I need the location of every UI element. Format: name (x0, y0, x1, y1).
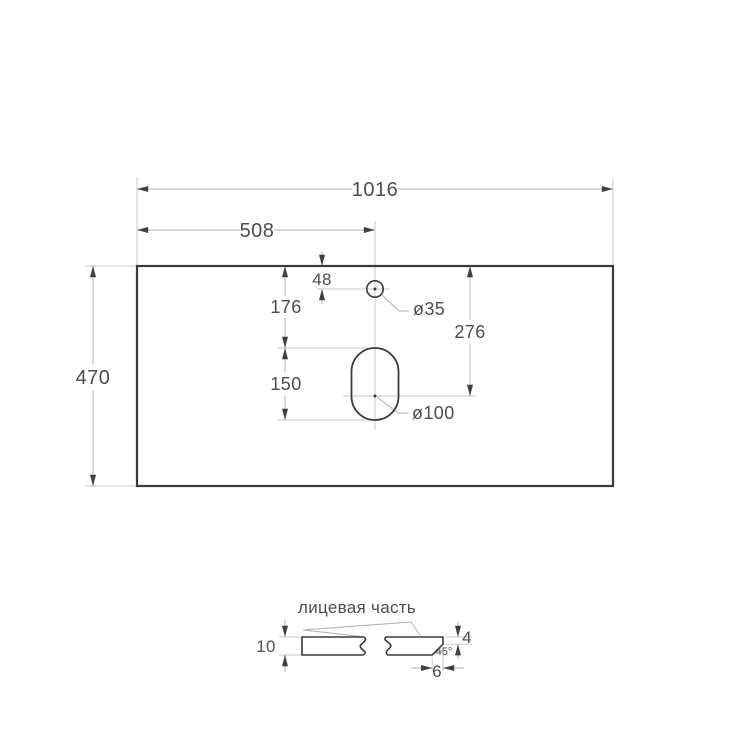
plan-view: 1016 508 470 48 176 150 276 ø35 ø100 (76, 177, 613, 486)
dim-total-width: 1016 (352, 179, 399, 201)
dim-176: 176 (270, 297, 301, 317)
dim-150: 150 (270, 374, 301, 394)
face-leader-left (303, 630, 362, 637)
label-drain-diameter: ø100 (412, 403, 455, 423)
face-label-leaders (303, 622, 420, 637)
extension-lines (86, 177, 613, 486)
section-slab-left-piece (302, 637, 366, 655)
dim-depth: 470 (76, 367, 111, 389)
dim-276: 276 (454, 322, 485, 342)
faucet-hole-leader (381, 294, 409, 311)
face-leader-right (303, 622, 420, 635)
countertop-drawing: 1016 508 470 48 176 150 276 ø35 ø100 (0, 0, 750, 750)
dim-half-width: 508 (240, 220, 275, 242)
dim-faucet-offset: 48 (312, 270, 332, 289)
dim-thickness: 10 (256, 637, 276, 656)
dim-edge-height: 4 (462, 628, 472, 647)
technical-drawing-page: 1016 508 470 48 176 150 276 ø35 ø100 (0, 0, 750, 750)
dimension-lines (93, 189, 613, 486)
dim-chamfer-angle: 45° (436, 646, 453, 658)
label-faucet-diameter: ø35 (413, 299, 445, 319)
faucet-hole-center-dot (374, 288, 377, 291)
drain-hole-center-dot (374, 395, 377, 398)
dim-chamfer-width: 6 (432, 662, 442, 681)
section-slab-right-piece (385, 637, 443, 655)
leader-lines (377, 294, 409, 413)
label-face-side: лицевая часть (298, 598, 416, 617)
section-view: лицевая часть 10 4 45° 6 (256, 598, 472, 681)
section-labels: лицевая часть 10 4 45° 6 (256, 598, 472, 681)
